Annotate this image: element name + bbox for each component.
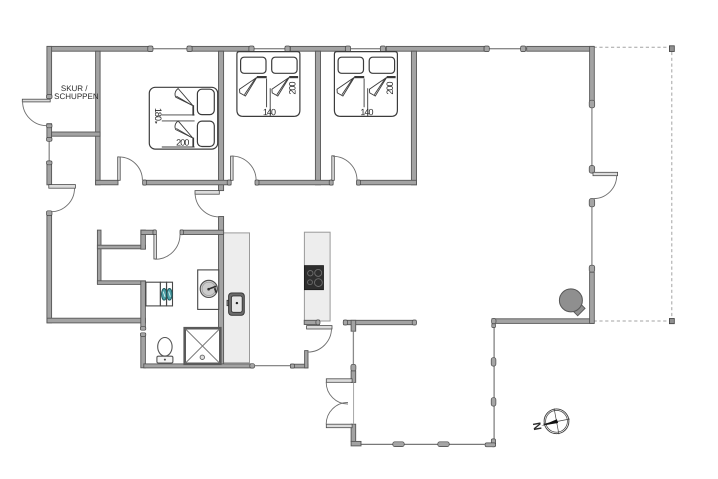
svg-text:SCHUPPEN: SCHUPPEN [54, 92, 99, 101]
svg-text:200: 200 [176, 137, 189, 147]
svg-text:200: 200 [288, 81, 298, 94]
svg-text:200: 200 [385, 81, 395, 94]
svg-text:140: 140 [360, 107, 373, 117]
svg-text:180: 180 [153, 108, 163, 121]
svg-text:140: 140 [263, 107, 276, 117]
